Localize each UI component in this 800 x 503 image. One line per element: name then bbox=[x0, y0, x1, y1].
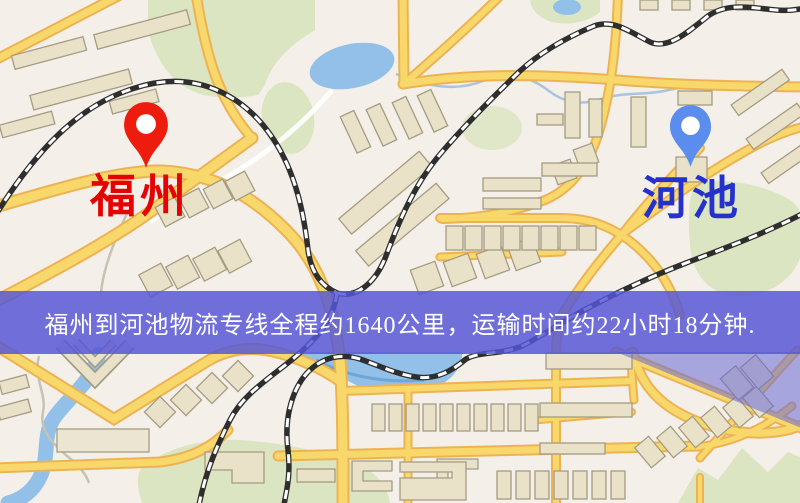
destination-city-label: 河池 bbox=[642, 176, 742, 222]
route-info-banner: 福州到河池物流专线全程约1640公里，运输时间约22小时18分钟. bbox=[0, 291, 800, 354]
origin-city-label: 福州 bbox=[90, 174, 190, 220]
map-screenshot: 福州 河池 福州到河池物流专线全程约1640公里，运输时间约22小时18分钟. bbox=[0, 0, 800, 503]
destination-pin-icon[interactable] bbox=[668, 104, 713, 169]
origin-pin-icon[interactable] bbox=[122, 101, 170, 170]
route-info-text: 福州到河池物流专线全程约1640公里，运输时间约22小时18分钟. bbox=[45, 305, 756, 340]
map-canvas[interactable] bbox=[0, 0, 800, 503]
